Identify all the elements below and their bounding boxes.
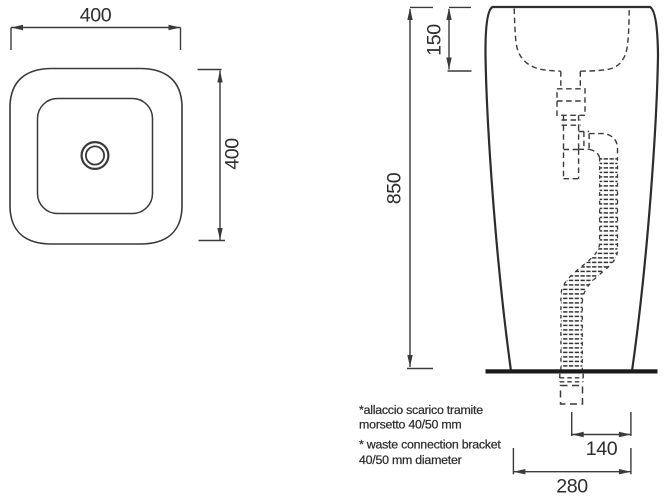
svg-text:*allaccio scarico tramite: *allaccio scarico tramite: [359, 403, 483, 417]
svg-text:400: 400: [222, 138, 244, 170]
svg-text:280: 280: [556, 476, 588, 498]
svg-text:140: 140: [586, 438, 618, 460]
svg-text:850: 850: [384, 172, 406, 204]
svg-text:morsetto 40/50 mm: morsetto 40/50 mm: [359, 418, 462, 432]
svg-text:400: 400: [80, 5, 112, 27]
svg-text:150: 150: [424, 24, 446, 56]
svg-text:* waste connection bracket: * waste connection bracket: [359, 438, 501, 452]
svg-text:40/50 mm diameter: 40/50 mm diameter: [359, 453, 462, 467]
